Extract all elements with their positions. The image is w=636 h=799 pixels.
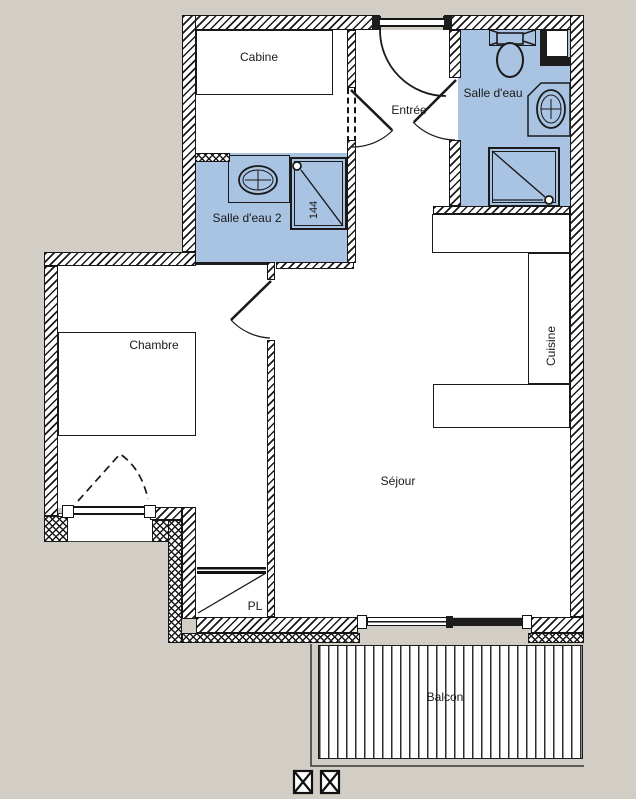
- shower-salle-deau: [488, 147, 560, 207]
- duct-shaft-wall-bottom: [540, 57, 572, 66]
- balcony-post-left: [294, 771, 312, 793]
- partition-chambre-stub: [267, 262, 275, 280]
- closet-shelf: [197, 567, 266, 574]
- bay-sliding-door: [452, 618, 523, 626]
- room-label-placard: PL: [248, 599, 263, 613]
- insulation-window-left: [44, 516, 68, 542]
- wall-right: [570, 15, 584, 617]
- insulation-lower-left: [168, 520, 182, 643]
- room-label-cuisine: Cuisine: [544, 326, 558, 366]
- chambre-window-jamb-left: [62, 505, 74, 518]
- wall-salle-deau2-right: [347, 140, 356, 263]
- wall-lower-left: [182, 507, 196, 619]
- floor-plan: Cabine Entrée Salle d'eau Salle d'eau 2 …: [0, 0, 636, 799]
- wall-bottom-right: [531, 617, 584, 633]
- partition-salle-deau-upper: [449, 30, 461, 78]
- shower-dimension-label: 144: [308, 201, 320, 219]
- line-salle-deau2-chambre: [196, 262, 267, 265]
- partition-cabine-sliding: [347, 88, 356, 142]
- wall-left: [44, 266, 58, 516]
- partition-salle-deau-lower: [449, 140, 461, 206]
- room-label-sejour: Séjour: [381, 474, 416, 488]
- chambre-window-jamb-right: [144, 505, 156, 518]
- wall-top-right: [444, 15, 584, 30]
- kitchen-counter-top: [432, 214, 570, 253]
- washing-machine: [489, 29, 536, 46]
- bay-jamb-left: [357, 615, 367, 629]
- wall-kitchen-top: [433, 206, 570, 214]
- room-label-entree: Entrée: [391, 103, 426, 117]
- partition-chambre: [267, 340, 275, 617]
- wall-salle-deau2-bottom: [276, 262, 354, 269]
- balcony-post-right: [321, 771, 339, 793]
- wall-step: [44, 252, 196, 266]
- entry-jamb-right: [443, 16, 452, 30]
- room-label-balcon: Balcon: [427, 690, 464, 704]
- partition-cabine: [347, 30, 356, 88]
- room-label-salle-deau: Salle d'eau: [463, 86, 522, 100]
- bay-jamb-right: [522, 615, 532, 629]
- wall-top-left: [182, 15, 380, 30]
- insulation-salle-deau2-top: [195, 153, 230, 162]
- chambre-window: [66, 506, 152, 515]
- sink-counter-salle-deau2: [228, 155, 290, 203]
- wall-upper-left: [182, 15, 196, 252]
- room-label-chambre: Chambre: [129, 338, 178, 352]
- entry-door-leaf: [380, 18, 444, 27]
- bay-window: [367, 617, 447, 626]
- insulation-bottom-left: [182, 633, 360, 643]
- kitchen-counter-bottom: [433, 384, 570, 428]
- insulation-bottom-right: [528, 633, 584, 643]
- duct-shaft: [546, 30, 568, 57]
- room-label-cabine: Cabine: [240, 50, 278, 64]
- room-label-salle-deau2: Salle d'eau 2: [212, 211, 281, 225]
- wall-bottom-left: [196, 617, 358, 633]
